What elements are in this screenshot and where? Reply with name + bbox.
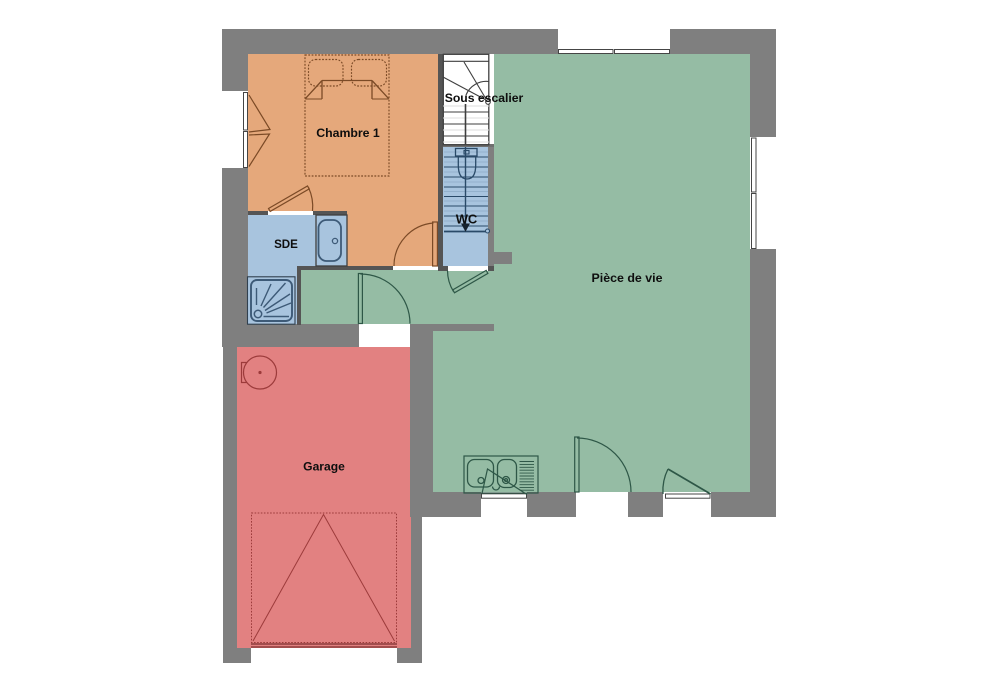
svg-text:Chambre 1: Chambre 1 [316,126,380,140]
svg-text:WC: WC [456,212,477,227]
svg-text:Pièce de vie: Pièce de vie [592,271,663,285]
svg-text:Garage: Garage [303,460,345,474]
svg-text:SDE: SDE [274,238,298,251]
svg-text:Sous escalier: Sous escalier [445,91,524,105]
